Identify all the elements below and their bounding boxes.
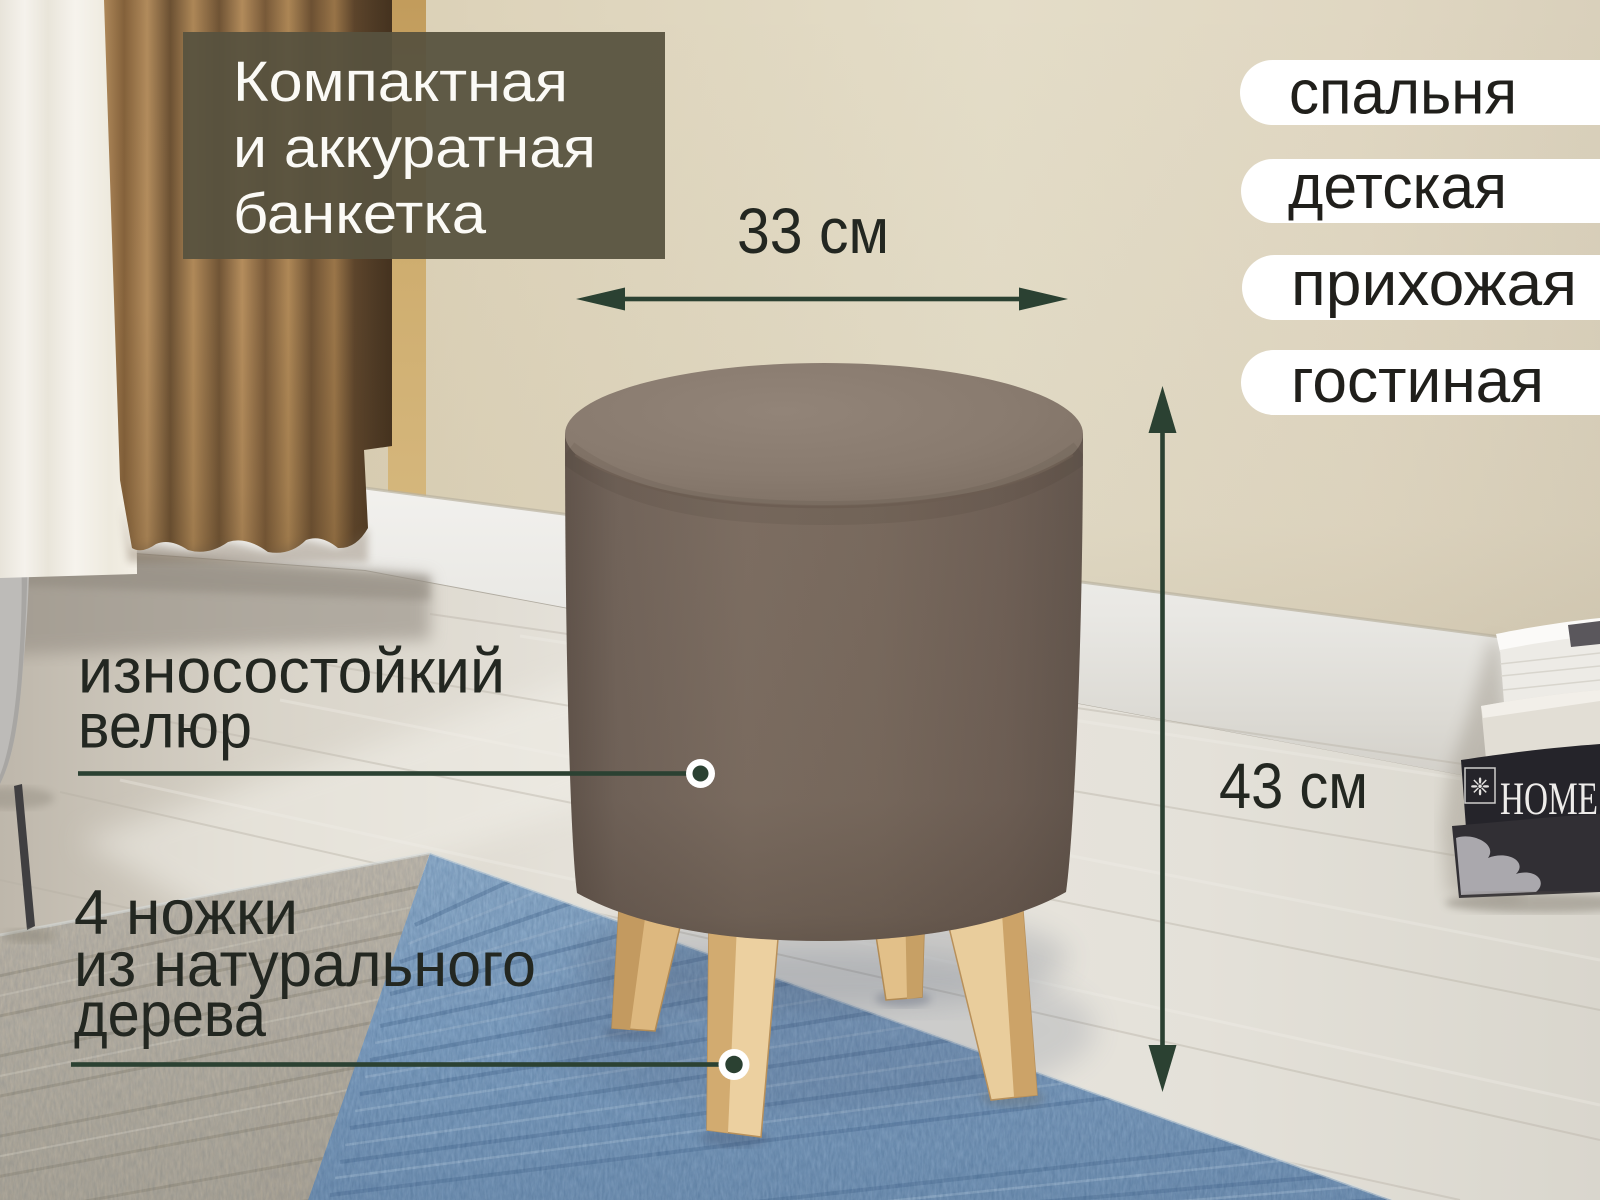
svg-text:гостиная: гостиная xyxy=(1291,347,1544,416)
svg-text:Компактная: Компактная xyxy=(233,50,568,114)
svg-text:прихожая: прихожая xyxy=(1291,250,1577,319)
svg-text:33 см: 33 см xyxy=(737,195,889,267)
svg-text:43 см: 43 см xyxy=(1219,750,1368,822)
svg-text:банкетка: банкетка xyxy=(233,182,486,246)
svg-text:❈: ❈ xyxy=(1470,775,1490,801)
svg-text:и аккуратная: и аккуратная xyxy=(233,116,596,180)
svg-text:велюр: велюр xyxy=(78,692,252,762)
svg-text:спальня: спальня xyxy=(1289,59,1517,128)
svg-text:дерева: дерева xyxy=(74,980,267,1050)
svg-text:детская: детская xyxy=(1288,153,1507,222)
